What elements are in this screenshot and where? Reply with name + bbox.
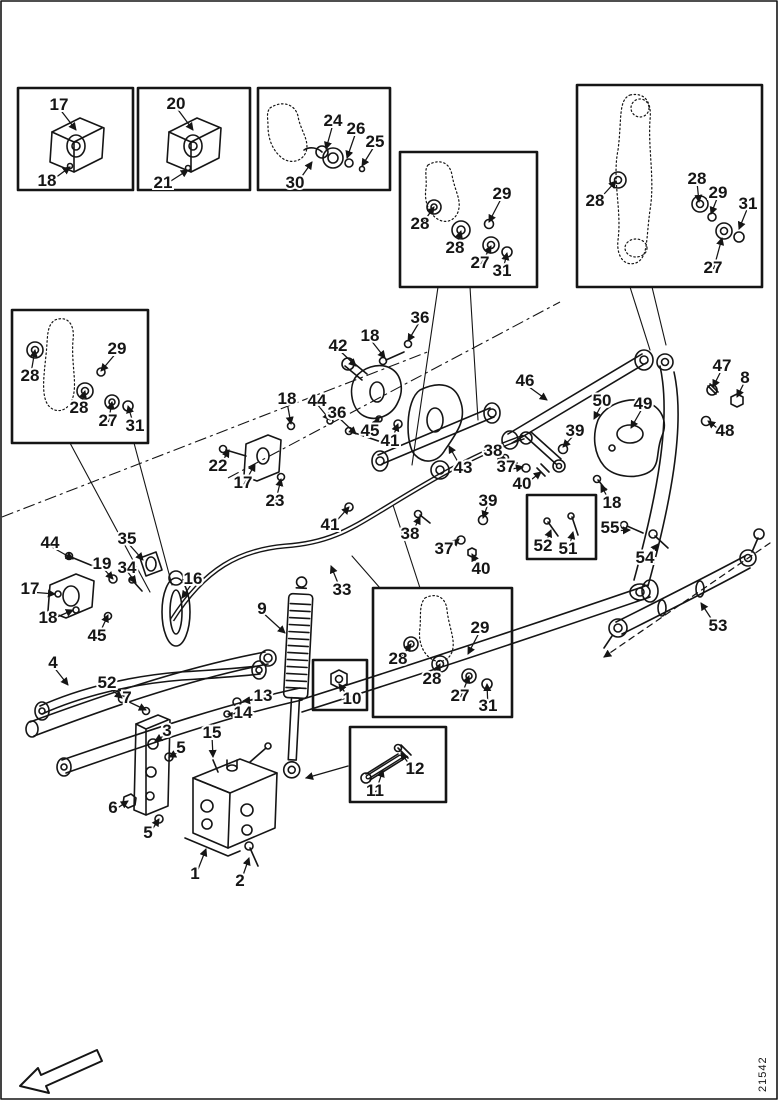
torque-rod <box>35 661 266 720</box>
callout-18: 18 <box>278 389 297 408</box>
callout-51: 51 <box>559 539 578 558</box>
callout-4: 4 <box>48 653 58 672</box>
callout-44: 44 <box>308 391 327 410</box>
callout-53: 53 <box>709 616 728 635</box>
callout-40: 40 <box>513 474 532 493</box>
callout-27: 27 <box>99 411 118 430</box>
bolt-sketch-11-12 <box>361 745 411 784</box>
callout-21: 21 <box>154 173 173 192</box>
callout-7: 7 <box>122 688 131 707</box>
callout-labels: 1718202124262530282928273128282931272829… <box>21 94 758 890</box>
callout-48: 48 <box>716 421 735 440</box>
callout-2: 2 <box>235 871 244 890</box>
callout-9: 9 <box>257 599 266 618</box>
callout-8: 8 <box>740 368 749 387</box>
callout-30: 30 <box>286 173 305 192</box>
callout-18: 18 <box>38 171 57 190</box>
callout-36: 36 <box>411 308 430 327</box>
callout-15: 15 <box>203 723 222 742</box>
callout-37: 37 <box>435 539 454 558</box>
tie-rod <box>604 529 770 657</box>
callout-27: 27 <box>451 686 470 705</box>
callout-20: 20 <box>167 94 186 113</box>
levelling-valve <box>185 743 277 866</box>
knuckle-sketch-top-middle <box>425 162 512 257</box>
callout-44: 44 <box>41 533 60 552</box>
callout-17: 17 <box>21 579 40 598</box>
callout-54: 54 <box>636 548 655 567</box>
callout-31: 31 <box>479 696 498 715</box>
callout-29: 29 <box>471 618 490 637</box>
callout-41: 41 <box>381 431 400 450</box>
callout-40: 40 <box>472 559 491 578</box>
callout-34: 34 <box>118 558 137 577</box>
callout-16: 16 <box>184 569 203 588</box>
box-bracket-17-18 <box>18 88 133 190</box>
callout-42: 42 <box>329 336 348 355</box>
callout-28: 28 <box>423 669 442 688</box>
callout-27: 27 <box>704 258 723 277</box>
callout-13: 13 <box>254 686 273 705</box>
callout-17: 17 <box>234 473 253 492</box>
callout-28: 28 <box>389 649 408 668</box>
callout-52: 52 <box>534 536 553 555</box>
callout-49: 49 <box>634 394 653 413</box>
callout-33: 33 <box>333 580 352 599</box>
callout-3: 3 <box>162 721 171 740</box>
callout-28: 28 <box>446 238 465 257</box>
callout-10: 10 <box>343 689 362 708</box>
callout-11: 11 <box>366 781 384 800</box>
callout-26: 26 <box>347 119 366 138</box>
callout-55: 55 <box>601 518 620 537</box>
callout-31: 31 <box>739 194 758 213</box>
callout-27: 27 <box>471 253 490 272</box>
callout-35: 35 <box>118 529 137 548</box>
shock-absorber <box>279 576 313 778</box>
callout-46: 46 <box>516 371 535 390</box>
callout-43: 43 <box>454 458 473 477</box>
callout-31: 31 <box>493 261 512 280</box>
callout-29: 29 <box>709 183 728 202</box>
knuckle-sketch-top-right <box>610 94 744 263</box>
callout-24: 24 <box>324 111 343 130</box>
callout-39: 39 <box>566 421 585 440</box>
callout-45: 45 <box>88 626 107 645</box>
callout-28: 28 <box>586 191 605 210</box>
callout-29: 29 <box>493 184 512 203</box>
figure-number: 21542 <box>757 1056 769 1092</box>
bracket-sketch-17-18 <box>50 118 104 172</box>
callout-5: 5 <box>143 823 152 842</box>
callout-14: 14 <box>234 703 253 722</box>
direction-arrow-icon <box>20 1050 102 1093</box>
callout-38: 38 <box>401 524 420 543</box>
callout-45: 45 <box>361 421 380 440</box>
callout-23: 23 <box>266 491 285 510</box>
callout-36: 36 <box>328 403 347 422</box>
callout-28: 28 <box>411 214 430 233</box>
callout-50: 50 <box>593 391 612 410</box>
callout-28: 28 <box>688 169 707 188</box>
callout-17: 17 <box>50 95 69 114</box>
callout-5: 5 <box>176 738 185 757</box>
callout-25: 25 <box>366 132 385 151</box>
upper-link-42 <box>288 341 412 446</box>
callout-6: 6 <box>108 798 117 817</box>
callout-1: 1 <box>190 864 199 883</box>
callout-22: 22 <box>209 456 228 475</box>
bracket-sketch-20-21 <box>167 118 221 172</box>
parts-diagram-page: 1718202124262530282928273128282931272829… <box>0 0 778 1100</box>
callout-18: 18 <box>39 608 58 627</box>
callout-29: 29 <box>108 339 127 358</box>
callout-18: 18 <box>361 326 380 345</box>
callout-31: 31 <box>126 416 145 435</box>
callout-39: 39 <box>479 491 498 510</box>
callout-52: 52 <box>98 673 117 692</box>
callout-28: 28 <box>21 366 40 385</box>
right-knuckle-assembly <box>594 354 744 600</box>
box-bolt-11-12 <box>350 727 446 802</box>
diagram-artwork: 1718202124262530282928273128282931272829… <box>0 0 778 1100</box>
box-knuckle-top-right <box>577 85 762 287</box>
callout-18: 18 <box>603 493 622 512</box>
callout-47: 47 <box>713 356 732 375</box>
callout-41: 41 <box>321 515 340 534</box>
callout-28: 28 <box>70 398 89 417</box>
callout-12: 12 <box>406 759 425 778</box>
callout-19: 19 <box>93 554 112 573</box>
